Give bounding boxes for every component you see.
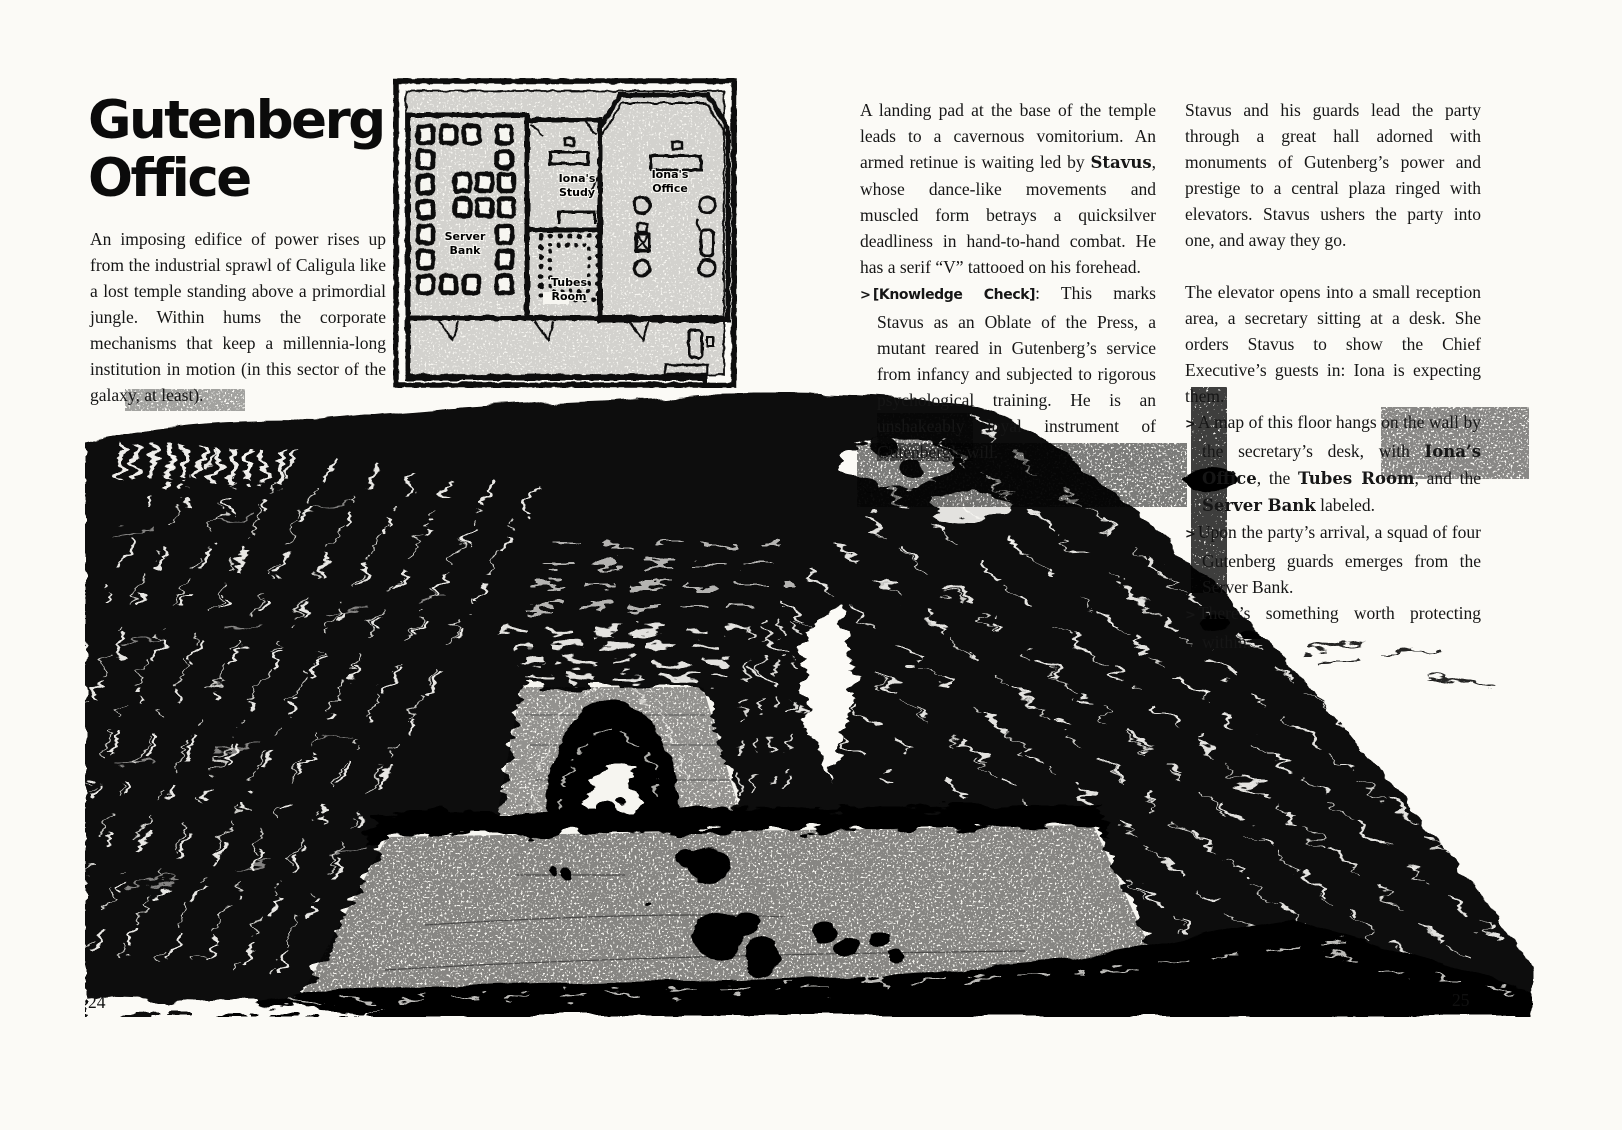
intro-column: An imposing edifice of power rises up fr…: [90, 226, 386, 408]
map-label-ionas-office: Iona's Office: [652, 168, 689, 196]
bullet-map-on-wall: >A map of this floor hangs on the wall b…: [1185, 409, 1481, 519]
chevron-bullet-icon: >: [860, 288, 873, 303]
page-number-left: 24: [88, 992, 106, 1013]
map-label-tubes-room: Tubes Room: [551, 276, 587, 304]
paragraph-landing-pad: A landing pad at the base of the temple …: [860, 97, 1156, 280]
paragraph-great-hall: Stavus and his guards lead the party thr…: [1185, 97, 1481, 253]
title-line-1: Gutenberg: [88, 92, 418, 150]
floor-plan-map: Server Bank Iona's Study Tubes Room Iona…: [393, 78, 737, 388]
title-line-2: Office: [88, 150, 418, 208]
column-2: Stavus and his guards lead the party thr…: [1185, 97, 1481, 655]
knowledge-check-bullet: >[Knowledge Check]: This marks Stavus as…: [860, 280, 1156, 465]
bullet-worth-protecting: >There’s something worth protecting with…: [1185, 600, 1481, 655]
chevron-bullet-icon: >: [1185, 527, 1198, 542]
paragraph-elevator: The elevator opens into a small receptio…: [1185, 279, 1481, 409]
page-title: Gutenberg Office: [88, 92, 418, 208]
page-number-right: 25: [1452, 990, 1470, 1011]
map-label-ionas-study: Iona's Study: [559, 172, 596, 200]
intro-paragraph: An imposing edifice of power rises up fr…: [90, 226, 386, 408]
bullet-guards: >Upon the party’s arrival, a squad of fo…: [1185, 519, 1481, 600]
map-label-server-bank: Server Bank: [445, 230, 486, 258]
chevron-bullet-icon: >: [1185, 417, 1198, 432]
column-1: A landing pad at the base of the temple …: [860, 97, 1156, 465]
stavus-bold: Stavus: [1091, 153, 1152, 172]
chevron-bullet-icon: >: [1185, 608, 1198, 623]
knowledge-check-label: [Knowledge Check]: [873, 287, 1035, 303]
